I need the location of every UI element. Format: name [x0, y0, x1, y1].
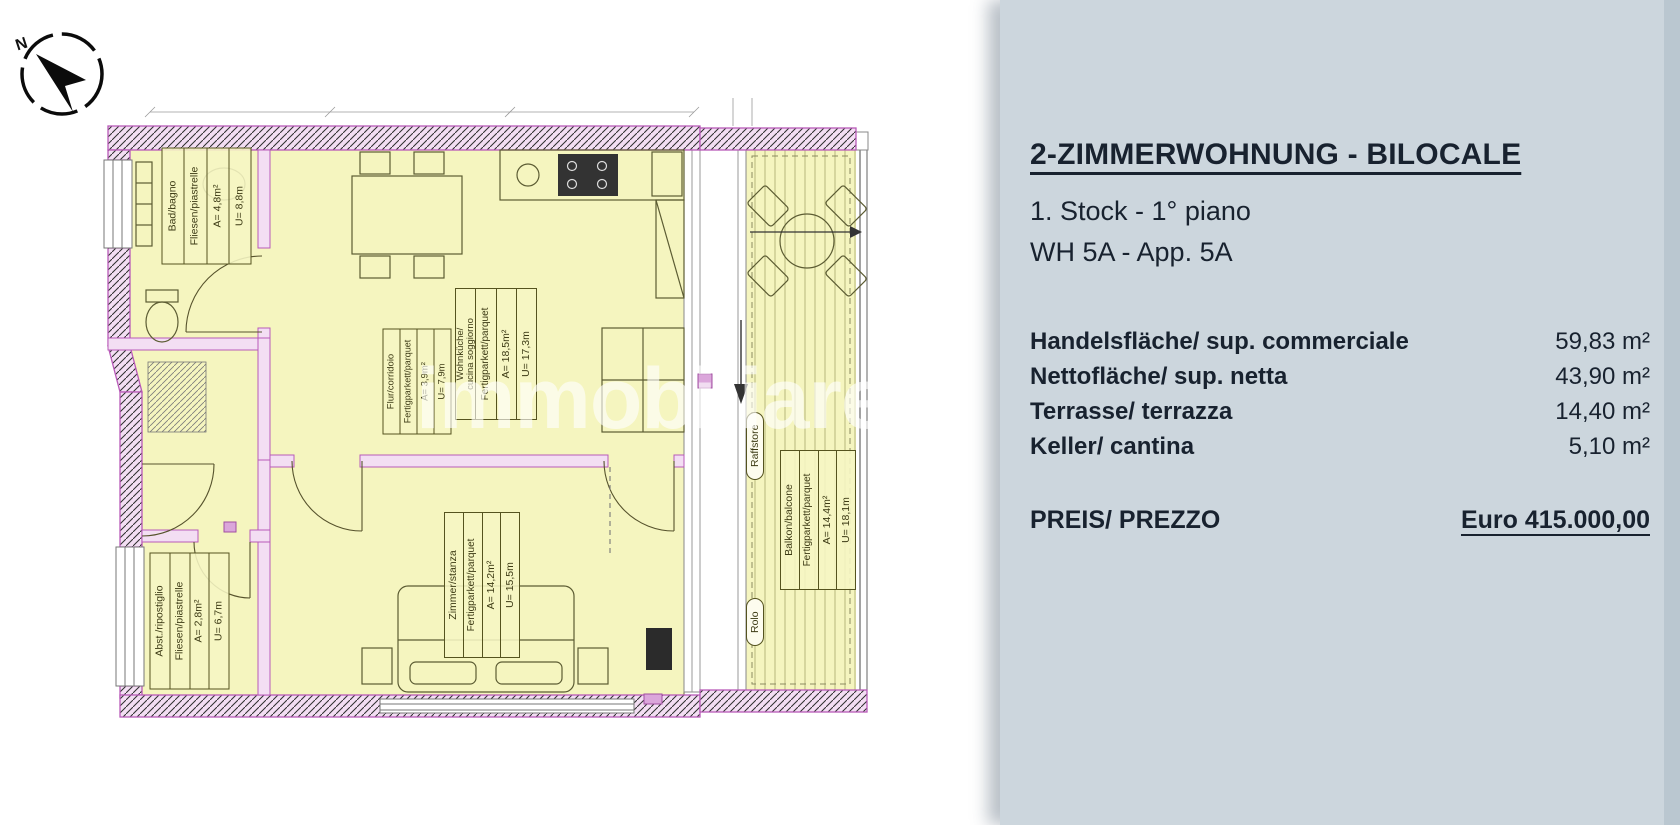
price-value: Euro 415.000,00: [1461, 506, 1650, 535]
room-area: A= 18,5m²: [497, 289, 517, 419]
shaft-hatch: [148, 362, 206, 432]
info-panel: 2-ZIMMERWOHNUNG - BILOCALE 1. Stock - 1°…: [1000, 0, 1680, 825]
room-label-abstellraum: Abst./ripostiglio Fliesen/piastrelle A= …: [150, 553, 230, 690]
room-name: Abst./ripostiglio: [151, 554, 171, 689]
room-area: A= 2,8m²: [190, 554, 210, 689]
room-perimeter: U= 17,3m: [517, 289, 536, 419]
compass-drawing: [8, 16, 112, 124]
room-perimeter: U= 6,7m: [210, 554, 229, 689]
area-value: 14,40 m²: [1555, 398, 1650, 426]
area-value: 5,10 m²: [1569, 433, 1650, 461]
raffstore-tag: Raffstore: [746, 412, 764, 480]
area-row-net: Nettofläche/ sup. netta 43,90 m²: [1030, 359, 1650, 394]
room-name: Balkon/balcone: [781, 451, 800, 589]
area-label: Nettofläche/ sup. netta: [1030, 363, 1287, 391]
unit-line: WH 5A - App. 5A: [1030, 237, 1650, 268]
screenshot-root: N Bad/bagno Fliesen/piastrelle A= 4,8m² …: [0, 0, 1680, 825]
room-label-bad: Bad/bagno Fliesen/piastrelle A= 4,8m² U=…: [162, 148, 252, 265]
room-area: A= 14,4m²: [819, 451, 838, 589]
room-flooring: Fertigparkett/parquet: [800, 451, 819, 589]
area-row-cellar: Keller/ cantina 5,10 m²: [1030, 429, 1650, 464]
price-label: PREIS/ PREZZO: [1030, 506, 1220, 535]
room-name: Bad/bagno: [163, 149, 185, 264]
compass-arrow-icon: [36, 54, 86, 112]
terrace: [746, 132, 868, 690]
dimension-lines: [145, 98, 752, 126]
room-perimeter: U= 8,8m: [229, 149, 250, 264]
room-area: A= 4,8m²: [207, 149, 229, 264]
room-label-balkon: Balkon/balcone Fertigparkett/parquet A= …: [780, 450, 856, 590]
room-label-zimmer: Zimmer/stanza Fertigparkett/parquet A= 1…: [444, 512, 520, 658]
room-perimeter: U= 7,9m: [435, 330, 451, 434]
listing-title: 2-ZIMMERWOHNUNG - BILOCALE: [1030, 138, 1650, 172]
room-perimeter: U= 15,5m: [501, 513, 519, 657]
room-name: Flur/corridoio: [384, 330, 401, 434]
panel-content: 2-ZIMMERWOHNUNG - BILOCALE 1. Stock - 1°…: [1000, 0, 1680, 535]
area-value: 59,83 m²: [1555, 328, 1650, 356]
compass: N: [8, 16, 112, 124]
floor-line: 1. Stock - 1° piano: [1030, 196, 1650, 227]
room-perimeter: U= 18,1m: [837, 451, 855, 589]
area-value: 43,90 m²: [1555, 363, 1650, 391]
room-label-wohnkueche: Wohnküche/ cucina soggiorno Fertigparket…: [455, 288, 537, 420]
room-name: Wohnküche/ cucina soggiorno: [456, 289, 476, 419]
area-row-commercial: Handelsfläche/ sup. commerciale 59,83 m²: [1030, 324, 1650, 359]
room-label-flur: Flur/corridoio Fertigparkett/parquet A= …: [383, 329, 452, 435]
glass-facade: [684, 150, 748, 692]
floorplan-area: N Bad/bagno Fliesen/piastrelle A= 4,8m² …: [0, 0, 1000, 825]
room-name: Zimmer/stanza: [445, 513, 464, 657]
area-table: Handelsfläche/ sup. commerciale 59,83 m²…: [1030, 324, 1650, 464]
room-flooring: Fliesen/piastrelle: [170, 554, 190, 689]
room-area: A= 14,2m²: [483, 513, 502, 657]
rolo-tag: Rolo: [746, 598, 764, 646]
room-area: A= 3,9m²: [418, 330, 435, 434]
price-row: PREIS/ PREZZO Euro 415.000,00: [1030, 506, 1650, 535]
area-label: Keller/ cantina: [1030, 433, 1194, 461]
room-flooring: Fertigparkett/parquet: [476, 289, 496, 419]
room-flooring: Fertigparkett/parquet: [464, 513, 483, 657]
area-label: Terrasse/ terrazza: [1030, 398, 1232, 426]
room-flooring: Fertigparkett/parquet: [401, 330, 418, 434]
area-label: Handelsfläche/ sup. commerciale: [1030, 328, 1409, 356]
room-flooring: Fliesen/piastrelle: [185, 149, 207, 264]
area-row-terrace: Terrasse/ terrazza 14,40 m²: [1030, 394, 1650, 429]
